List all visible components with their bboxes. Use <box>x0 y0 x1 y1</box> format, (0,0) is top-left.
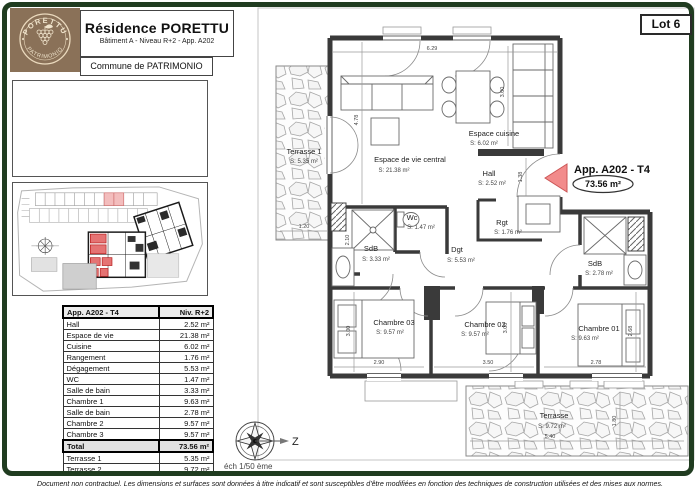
dimension-label: 2.90 <box>374 360 385 366</box>
room-label-rgt: Rgt <box>496 218 509 227</box>
apartment-callout-area: 73.56 m² <box>585 179 621 189</box>
chair <box>442 101 456 117</box>
room-label-chambre-01: Chambre 01 <box>578 324 619 333</box>
duct-column <box>331 203 346 231</box>
room-label-espace-de-vie: Espace de vie central <box>374 155 446 164</box>
north-direction-label: Z <box>292 436 299 448</box>
table-row: Rangement1.76 m² <box>63 352 213 363</box>
apartment-callout: App. A202 - T4 73.56 m² <box>545 164 651 193</box>
building-subtitle: Bâtiment A - Niveau R+2 - App. A202 <box>81 38 233 45</box>
residence-title: Résidence PORETTU <box>81 20 233 36</box>
dimension-label: 3.00 <box>346 326 352 337</box>
lot-badge: Lot 6 <box>640 14 692 35</box>
dimension-label: 1.38 <box>518 172 524 183</box>
logo: PORETTU PATRIMONIO <box>10 8 80 72</box>
chair <box>490 101 504 117</box>
room-area-label: S: 2.52 m² <box>478 181 506 187</box>
highlighted-parking <box>114 193 124 206</box>
room-area-label: S: 21.38 m² <box>378 168 409 174</box>
dimension-label: 5.40 <box>545 434 556 440</box>
dimension-label: 3.50 <box>483 360 494 366</box>
title-block: Résidence PORETTU Bâtiment A - Niveau R+… <box>80 10 234 57</box>
room-label-hall: Hall <box>483 169 496 178</box>
table-header-row: App. A202 - T4 Niv. R+2 <box>63 306 213 318</box>
highlighted-parking <box>104 193 114 206</box>
dimension-label: 4.78 <box>354 115 360 126</box>
commune-label: Commune de PATRIMONIO <box>80 57 213 76</box>
dining-table <box>456 71 490 123</box>
room-area-label: S: 5.53 m² <box>447 258 475 264</box>
exterior-step <box>365 381 457 401</box>
areas-table: App. A202 - T4 Niv. R+2 Hall2.52 m² Espa… <box>62 305 214 475</box>
table-row: Hall2.52 m² <box>63 318 213 330</box>
table-row: Chambre 19.63 m² <box>63 396 213 407</box>
room-area-label: S: 9.72 m² <box>538 424 566 430</box>
room-label-sdb-1: SdB <box>364 244 378 253</box>
key-plan-placeholder <box>12 80 208 177</box>
scale-label: éch 1/50 ème <box>224 462 272 471</box>
site-plan <box>12 182 208 296</box>
room-label-wc: Wc <box>407 213 418 222</box>
dimension-label: 3.00 <box>500 87 506 98</box>
table-header-level: Niv. R+2 <box>159 306 213 318</box>
chair <box>442 77 456 93</box>
highlighted-apartment <box>100 268 108 276</box>
dimension-label: 1.20 <box>299 224 310 230</box>
room-area-label: S: 3.33 m² <box>362 257 390 263</box>
table-header-apartment: App. A202 - T4 <box>63 306 159 318</box>
duct-column <box>628 217 644 251</box>
room-area-label: S: 2.78 m² <box>585 271 613 277</box>
table-row: Cuisine6.02 m² <box>63 341 213 352</box>
table-row: Chambre 29.57 m² <box>63 418 213 429</box>
room-area-label: S: 5.35 m² <box>290 159 318 165</box>
table-total-row: Total 73.56 m² <box>63 440 213 452</box>
room-label-terrasse-1: Terrasse 1 <box>286 147 321 156</box>
dimension-label: 2.78 <box>591 360 602 366</box>
room-label-chambre-03: Chambre 03 <box>373 318 414 327</box>
window-sill <box>570 381 598 388</box>
dimension-label: 2.10 <box>345 235 351 246</box>
room-label-terrasse-2: Terrasse <box>540 411 569 420</box>
rug <box>371 118 399 145</box>
building-a-footprint <box>88 232 145 277</box>
room-area-label: S: 6.02 m² <box>470 141 498 147</box>
room-label-dgt: Dgt <box>451 245 464 254</box>
highlighted-apartment <box>90 234 106 243</box>
room-area-label: S: 1.76 m² <box>494 230 522 236</box>
table-row: Salle de bain3.33 m² <box>63 385 213 396</box>
room-label-sdb-2: SdB <box>588 259 602 268</box>
room-area-label: S: 1.47 m² <box>407 225 435 231</box>
highlighted-apartment <box>102 258 112 266</box>
room-label-chambre-02: Chambre 02 <box>464 320 505 329</box>
table-row: Terrasse 15.35 m² <box>63 452 213 464</box>
entry-arrow-icon <box>545 164 567 192</box>
room-area-label: S: 9.57 m² <box>461 332 489 338</box>
room-area-label: S: 9.57 m² <box>376 330 404 336</box>
room-label-espace-cuisine: Espace cuisine <box>469 129 519 138</box>
room-area-label: S: 9.63 m² <box>571 336 599 342</box>
sofa <box>341 76 433 110</box>
table-row: Espace de vie21.38 m² <box>63 330 213 341</box>
dimension-label: 1.80 <box>612 416 618 427</box>
terrace-2-floor <box>466 386 688 456</box>
table-row: WC1.47 m² <box>63 374 213 385</box>
table-row: Terrasse 29.72 m² <box>63 464 213 475</box>
window-sill <box>515 381 543 388</box>
table-row: Chambre 39.57 m² <box>63 429 213 441</box>
window-sill <box>604 381 644 388</box>
table-row: Dégagement5.53 m² <box>63 363 213 374</box>
apartment-callout-label: App. A202 - T4 <box>574 164 651 176</box>
highlighted-apartment <box>90 245 106 254</box>
floor-plan: 6.29 4.78 3.00 1.38 1.20 2.10 3.00 2.90 … <box>250 4 700 466</box>
dimension-label: 2.68 <box>628 326 634 337</box>
footer-disclaimer: Document non contractuel. Les dimensions… <box>0 480 700 488</box>
table-row: Salle de bain2.78 m² <box>63 407 213 418</box>
dimension-label: 6.29 <box>427 46 438 52</box>
